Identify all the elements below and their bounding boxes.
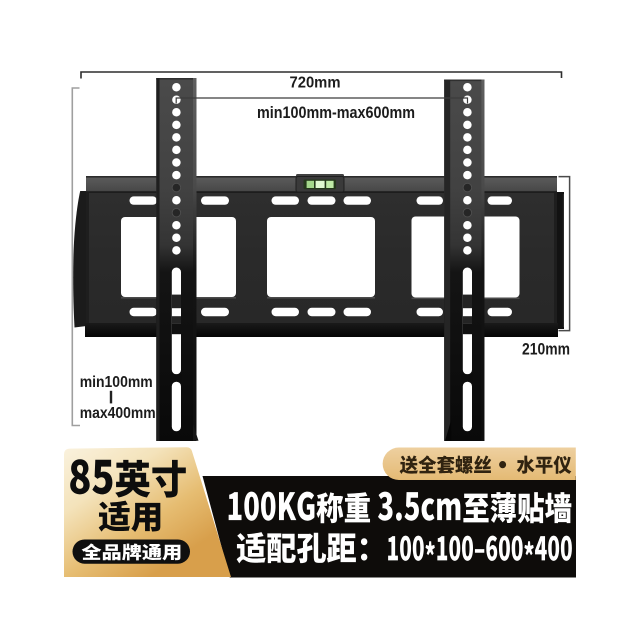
svg-text:210mm: 210mm (522, 341, 570, 359)
svg-text:max400mm: max400mm (80, 405, 156, 422)
svg-text:min100mm-max600mm: min100mm-max600mm (257, 104, 415, 122)
svg-text:720mm: 720mm (290, 75, 341, 92)
svg-text:min100mm: min100mm (80, 374, 153, 391)
